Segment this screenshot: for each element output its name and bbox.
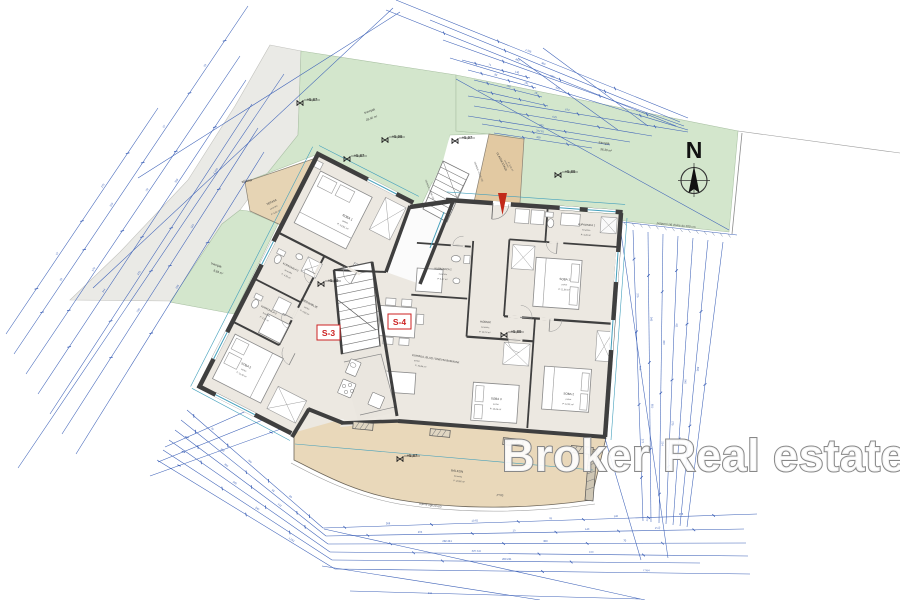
svg-text:140: 140: [614, 514, 619, 518]
svg-text:SOBA 2: SOBA 2: [563, 392, 574, 397]
svg-text:+5,88: +5,88: [565, 169, 576, 174]
svg-text:260 241: 260 241: [502, 557, 512, 561]
svg-text:+5,97: +5,97: [462, 135, 473, 140]
svg-text:Broker Real estate: Broker Real estate: [502, 430, 900, 481]
svg-text:368: 368: [386, 521, 391, 525]
svg-text:N: N: [686, 137, 703, 163]
svg-text:+5,89: +5,89: [511, 329, 522, 334]
svg-text:140: 140: [585, 527, 590, 531]
svg-text:+5,98: +5,98: [392, 134, 403, 139]
svg-text:292 241: 292 241: [442, 539, 452, 543]
svg-text:100: 100: [589, 550, 594, 554]
svg-text:345: 345: [649, 317, 653, 322]
svg-text:320 241: 320 241: [472, 549, 482, 553]
svg-text:550: 550: [650, 404, 654, 409]
svg-text:+5,87: +5,87: [354, 153, 365, 158]
svg-text:SOBA 1: SOBA 1: [559, 277, 570, 282]
svg-text:parket: parket: [566, 398, 572, 401]
svg-text:7.554: 7.554: [643, 568, 650, 572]
svg-text:268: 268: [679, 512, 684, 516]
svg-text:300: 300: [543, 539, 548, 543]
svg-text:350: 350: [662, 340, 666, 345]
svg-text:+5,89: +5,89: [328, 278, 339, 283]
svg-text:+5,87: +5,87: [407, 453, 418, 458]
svg-text:10 65: 10 65: [471, 518, 478, 522]
svg-text:411: 411: [675, 323, 679, 328]
svg-text:HODNIK: HODNIK: [480, 320, 491, 325]
svg-text:SOBA 3: SOBA 3: [491, 396, 502, 401]
svg-text:S-3: S-3: [322, 328, 336, 338]
svg-text:S-4: S-4: [393, 317, 407, 327]
svg-text:375: 375: [636, 293, 640, 298]
svg-text:+5,87: +5,87: [307, 97, 318, 102]
svg-text:parket: parket: [561, 283, 567, 286]
svg-text:404: 404: [418, 530, 423, 534]
svg-text:parket: parket: [493, 403, 499, 406]
svg-text:275: 275: [671, 421, 675, 426]
svg-text:811: 811: [428, 591, 433, 595]
